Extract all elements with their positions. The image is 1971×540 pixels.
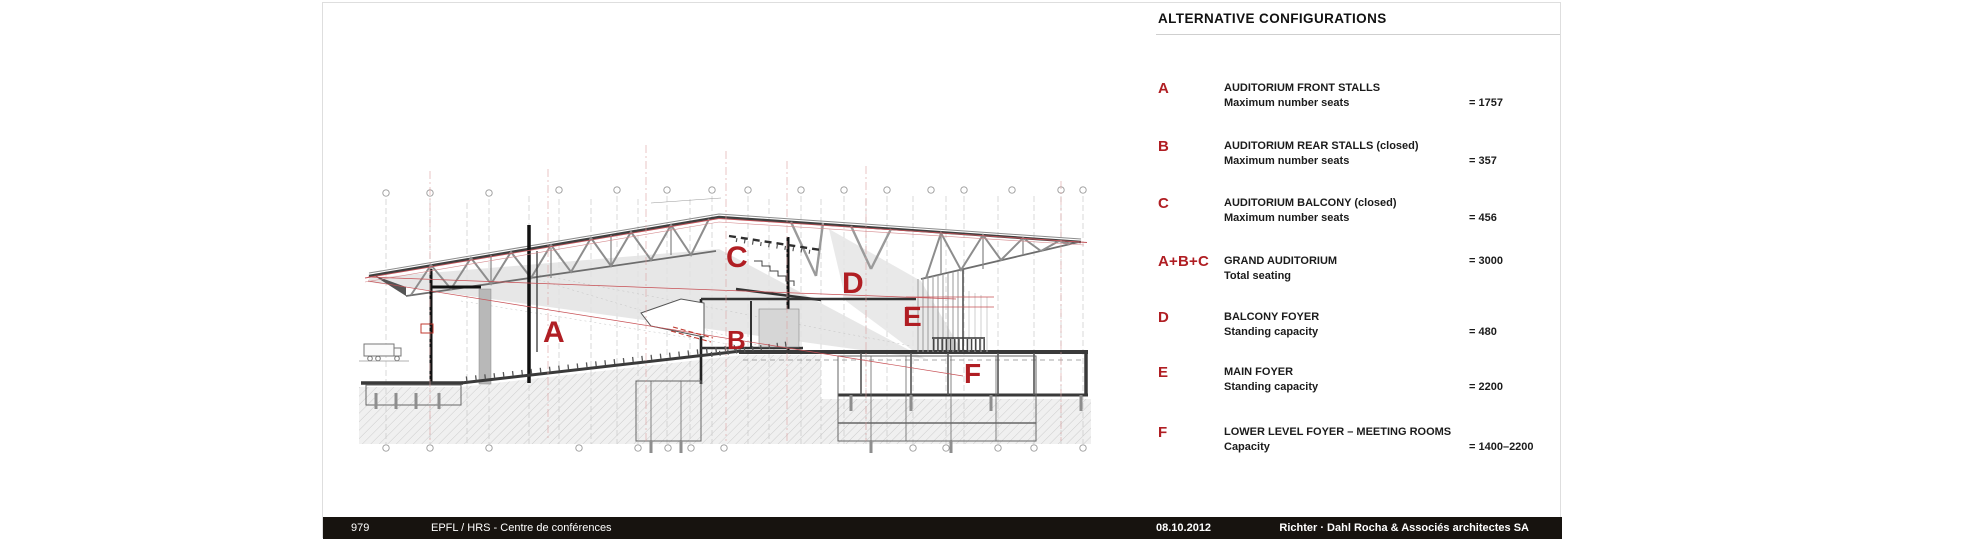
- zone-key: E: [1158, 364, 1168, 381]
- zone-label-f: F: [964, 358, 981, 389]
- legend-row-f: F LOWER LEVEL FOYER – MEETING ROOMS Capa…: [1156, 424, 1561, 464]
- zone-key: A: [1158, 80, 1169, 97]
- slide-page: A B C D E F ALTERNATIVE CONFIGURATIONS A…: [322, 2, 1561, 538]
- zone-label-e: E: [903, 301, 922, 332]
- truck: [359, 344, 409, 361]
- panel-title: ALTERNATIVE CONFIGURATIONS: [1158, 11, 1387, 26]
- zone-key: C: [1158, 195, 1169, 212]
- row-title: MAIN FOYER: [1224, 366, 1293, 378]
- row-metric: Standing capacity: [1224, 326, 1318, 338]
- row-value: = 357: [1469, 155, 1497, 167]
- row-title: AUDITORIUM BALCONY (closed): [1224, 197, 1397, 209]
- architect-firm: Richter · Dahl Rocha & Associés architec…: [1279, 517, 1529, 539]
- grid-bubbles-top: [383, 187, 1086, 196]
- row-title: GRAND AUDITORIUM: [1224, 255, 1337, 267]
- zone-label-c: C: [726, 241, 748, 274]
- zone-label-b: B: [727, 325, 746, 355]
- row-metric: Total seating: [1224, 270, 1291, 282]
- row-metric: Standing capacity: [1224, 381, 1318, 393]
- section-drawing: A B C D E F: [351, 141, 1101, 466]
- row-value: = 480: [1469, 326, 1497, 338]
- legend-row-c: C AUDITORIUM BALCONY (closed) Maximum nu…: [1156, 195, 1561, 235]
- zone-key: D: [1158, 309, 1169, 326]
- grid-bubbles-bottom: [383, 445, 1086, 451]
- legend-row-a: A AUDITORIUM FRONT STALLS Maximum number…: [1156, 80, 1561, 120]
- row-metric: Capacity: [1224, 441, 1270, 453]
- project-title: EPFL / HRS - Centre de conférences: [431, 517, 612, 539]
- row-title: BALCONY FOYER: [1224, 311, 1319, 323]
- alternative-configurations-panel: ALTERNATIVE CONFIGURATIONS A AUDITORIUM …: [1156, 3, 1561, 503]
- zone-key: B: [1158, 138, 1169, 155]
- legend-row-e: E MAIN FOYER Standing capacity = 2200: [1156, 364, 1561, 404]
- legend-row-abc: A+B+C GRAND AUDITORIUM Total seating = 3…: [1156, 253, 1561, 293]
- row-value: = 1400–2200: [1469, 441, 1534, 453]
- row-value: = 456: [1469, 212, 1497, 224]
- page-number: 979: [351, 517, 369, 539]
- date: 08.10.2012: [1156, 517, 1211, 539]
- ground-hatch: [359, 355, 1091, 444]
- legend-row-b: B AUDITORIUM REAR STALLS (closed) Maximu…: [1156, 138, 1561, 178]
- row-title: AUDITORIUM REAR STALLS (closed): [1224, 140, 1419, 152]
- zone-key: F: [1158, 424, 1167, 441]
- row-value: = 2200: [1469, 381, 1503, 393]
- legend-row-d: D BALCONY FOYER Standing capacity = 480: [1156, 309, 1561, 349]
- panel-rule: [1156, 34, 1560, 35]
- row-metric: Maximum number seats: [1224, 97, 1349, 109]
- zone-label-d: D: [842, 267, 864, 300]
- row-title: LOWER LEVEL FOYER – MEETING ROOMS: [1224, 426, 1451, 438]
- zone-key: A+B+C: [1158, 253, 1209, 270]
- row-metric: Maximum number seats: [1224, 212, 1349, 224]
- row-value: = 3000: [1469, 255, 1503, 267]
- row-metric: Maximum number seats: [1224, 155, 1349, 167]
- footer-bar: 979 EPFL / HRS - Centre de conférences 0…: [323, 517, 1562, 539]
- row-title: AUDITORIUM FRONT STALLS: [1224, 82, 1380, 94]
- foyer-columns: [918, 270, 987, 352]
- row-value: = 1757: [1469, 97, 1503, 109]
- zone-label-a: A: [543, 316, 565, 349]
